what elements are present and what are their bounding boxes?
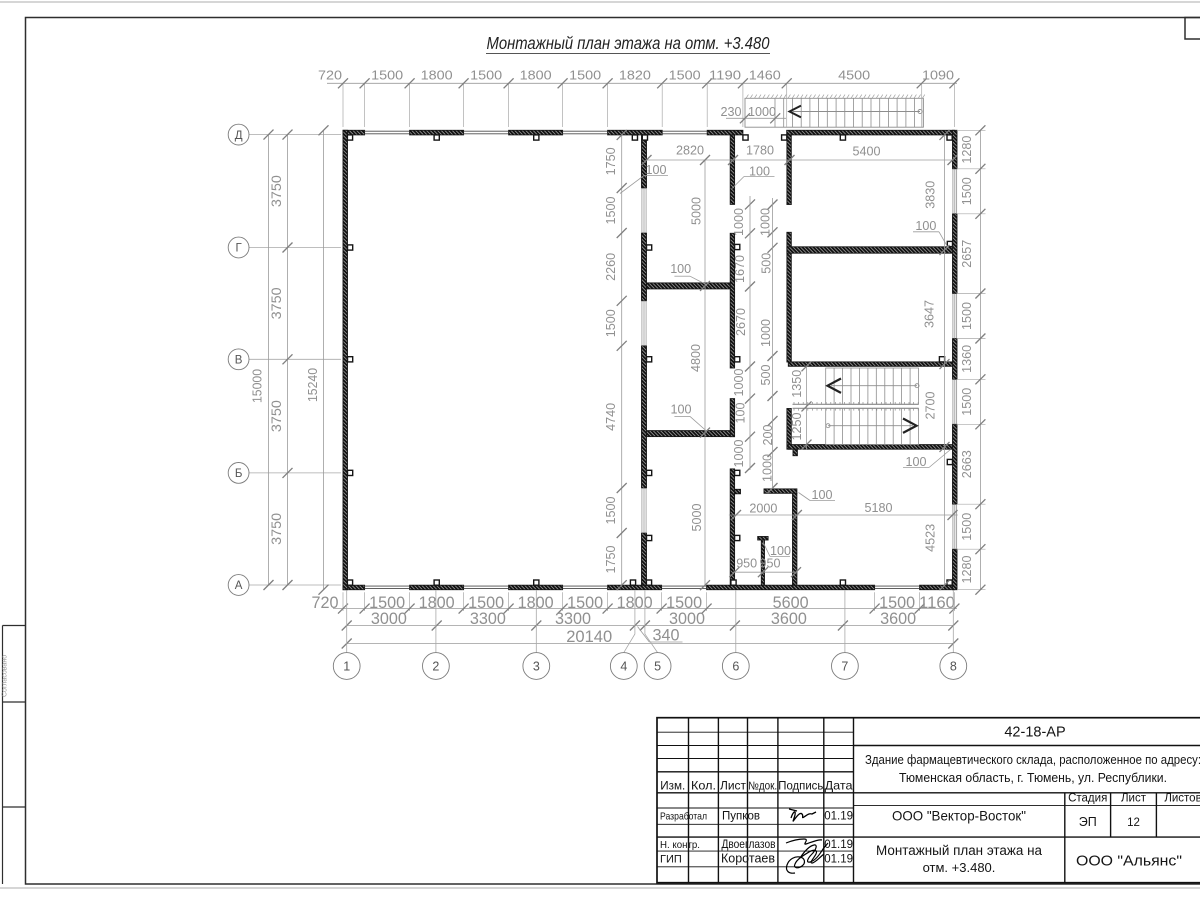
svg-text:1090: 1090 [922, 67, 954, 82]
svg-text:Монтажный план этажа на: Монтажный план этажа на [876, 843, 1042, 858]
svg-text:4500: 4500 [838, 67, 870, 82]
svg-text:1000: 1000 [758, 208, 773, 236]
svg-text:500: 500 [758, 365, 773, 386]
svg-text:20140: 20140 [566, 627, 612, 646]
svg-text:ГИП: ГИП [660, 854, 682, 866]
svg-text:01.19: 01.19 [824, 854, 853, 866]
svg-text:1280: 1280 [959, 556, 974, 584]
svg-text:А: А [235, 580, 243, 592]
svg-text:2700: 2700 [923, 392, 938, 420]
svg-text:1160: 1160 [919, 593, 955, 612]
svg-text:3000: 3000 [371, 609, 407, 628]
svg-text:1500: 1500 [569, 67, 601, 82]
svg-text:Разработал: Разработал [660, 811, 707, 823]
svg-text:1280: 1280 [959, 136, 974, 164]
svg-text:4800: 4800 [688, 344, 703, 372]
svg-text:1000: 1000 [748, 104, 776, 119]
svg-text:100: 100 [812, 487, 833, 502]
svg-text:100: 100 [915, 218, 936, 233]
svg-text:6: 6 [732, 659, 739, 673]
svg-text:1500: 1500 [470, 67, 502, 82]
svg-text:1360: 1360 [959, 345, 974, 373]
svg-text:1500: 1500 [669, 67, 701, 82]
svg-text:Согласовано: Согласовано [2, 655, 9, 697]
svg-text:1500: 1500 [959, 177, 974, 205]
svg-text:ЭП: ЭП [1079, 815, 1097, 829]
svg-text:5000: 5000 [689, 197, 704, 225]
svg-text:Г: Г [235, 243, 242, 255]
svg-text:1800: 1800 [520, 67, 552, 82]
svg-text:100: 100 [646, 162, 667, 177]
svg-text:1000: 1000 [731, 440, 746, 468]
svg-text:950: 950 [736, 556, 757, 571]
svg-text:1750: 1750 [603, 147, 618, 175]
svg-text:3300: 3300 [470, 609, 506, 628]
svg-text:Листов: Листов [1164, 793, 1200, 805]
svg-text:3: 3 [533, 659, 540, 673]
svg-text:100: 100 [670, 261, 691, 276]
svg-text:ООО "Альянс": ООО "Альянс" [1076, 854, 1182, 870]
svg-text:200: 200 [760, 425, 775, 446]
svg-text:1800: 1800 [419, 593, 455, 612]
svg-text:2000: 2000 [749, 500, 777, 515]
svg-text:Монтажный план этажа на отм. +: Монтажный план этажа на отм. +3.480 [487, 33, 770, 53]
svg-text:500: 500 [759, 253, 774, 274]
svg-text:Н. контр.: Н. контр. [660, 839, 700, 851]
svg-text:2: 2 [432, 659, 439, 673]
svg-text:4740: 4740 [603, 403, 618, 431]
svg-text:Двоеглазов: Двоеглазов [722, 837, 776, 851]
svg-text:12: 12 [1127, 817, 1140, 829]
svg-text:1500: 1500 [603, 497, 618, 525]
svg-text:1000: 1000 [731, 369, 746, 397]
svg-text:5180: 5180 [865, 500, 893, 515]
svg-text:3300: 3300 [555, 609, 591, 628]
svg-text:ООО "Вектор-Восток": ООО "Вектор-Восток" [892, 808, 1026, 824]
svg-text:Кол.: Кол. [691, 779, 716, 793]
svg-text:950: 950 [760, 556, 781, 571]
svg-text:1800: 1800 [421, 67, 453, 82]
svg-text:Изм.: Изм. [660, 779, 685, 793]
svg-text:720: 720 [318, 67, 342, 82]
svg-text:1780: 1780 [746, 142, 774, 157]
svg-text:2657: 2657 [959, 240, 974, 268]
svg-text:1670: 1670 [732, 255, 747, 283]
svg-text:1250: 1250 [789, 413, 804, 441]
svg-text:Пупков: Пупков [722, 809, 760, 823]
svg-text:100: 100 [906, 454, 927, 469]
svg-text:1000: 1000 [758, 319, 773, 347]
svg-text:3750: 3750 [268, 400, 284, 432]
svg-text:100: 100 [733, 403, 748, 424]
svg-text:Б: Б [235, 468, 243, 480]
svg-text:№док.: №док. [748, 781, 777, 793]
svg-text:4523: 4523 [923, 524, 938, 552]
svg-text:720: 720 [312, 593, 339, 612]
svg-text:100: 100 [671, 401, 692, 416]
svg-text:1800: 1800 [518, 593, 554, 612]
svg-text:1500: 1500 [371, 67, 403, 82]
svg-text:1460: 1460 [749, 67, 781, 82]
svg-text:3750: 3750 [268, 287, 284, 319]
svg-text:01.19: 01.19 [824, 811, 853, 823]
svg-text:Лист: Лист [1121, 793, 1147, 805]
svg-text:2820: 2820 [676, 142, 704, 157]
svg-text:3600: 3600 [880, 609, 916, 628]
svg-text:1500: 1500 [603, 197, 618, 225]
svg-text:01.19: 01.19 [824, 839, 853, 851]
svg-text:5: 5 [654, 659, 661, 673]
svg-text:3830: 3830 [923, 181, 938, 209]
svg-text:7: 7 [841, 659, 848, 673]
svg-text:3750: 3750 [268, 513, 284, 545]
svg-text:Дата: Дата [825, 779, 853, 793]
svg-text:15000: 15000 [249, 369, 264, 403]
svg-text:1820: 1820 [619, 67, 651, 82]
svg-text:1500: 1500 [959, 513, 974, 541]
svg-text:2670: 2670 [733, 308, 748, 336]
svg-text:4: 4 [620, 659, 627, 673]
svg-text:3647: 3647 [922, 300, 937, 328]
svg-text:8: 8 [950, 659, 957, 673]
svg-text:42-18-АР: 42-18-АР [1004, 725, 1065, 741]
svg-text:отм. +3.480.: отм. +3.480. [923, 860, 996, 875]
svg-text:1350: 1350 [789, 370, 804, 398]
svg-text:5400: 5400 [853, 143, 881, 158]
svg-text:2663: 2663 [959, 450, 974, 478]
svg-text:Тюменская область, г. Тюмень,: Тюменская область, г. Тюмень, ул. Респуб… [899, 771, 1167, 785]
svg-text:15240: 15240 [305, 368, 320, 402]
svg-text:Здание фармацевтического склад: Здание фармацевтического склада, располо… [865, 753, 1200, 767]
svg-text:Коротаев: Коротаев [721, 852, 775, 866]
svg-text:1500: 1500 [959, 302, 974, 330]
svg-text:Лист: Лист [720, 779, 746, 793]
svg-text:1500: 1500 [959, 388, 974, 416]
svg-text:Стадия: Стадия [1068, 793, 1107, 805]
svg-text:2260: 2260 [603, 253, 618, 281]
svg-text:5000: 5000 [689, 504, 704, 532]
svg-text:В: В [235, 355, 243, 367]
svg-text:Подпись: Подпись [778, 779, 823, 793]
svg-text:3600: 3600 [771, 609, 807, 628]
svg-text:1190: 1190 [709, 67, 741, 82]
svg-text:1000: 1000 [760, 454, 775, 482]
svg-text:230: 230 [721, 104, 742, 119]
svg-text:1: 1 [343, 659, 350, 673]
svg-text:1500: 1500 [603, 309, 618, 337]
svg-text:Д: Д [235, 130, 243, 142]
svg-text:3750: 3750 [268, 175, 284, 207]
svg-text:1000: 1000 [731, 208, 746, 236]
svg-text:1750: 1750 [603, 546, 618, 574]
